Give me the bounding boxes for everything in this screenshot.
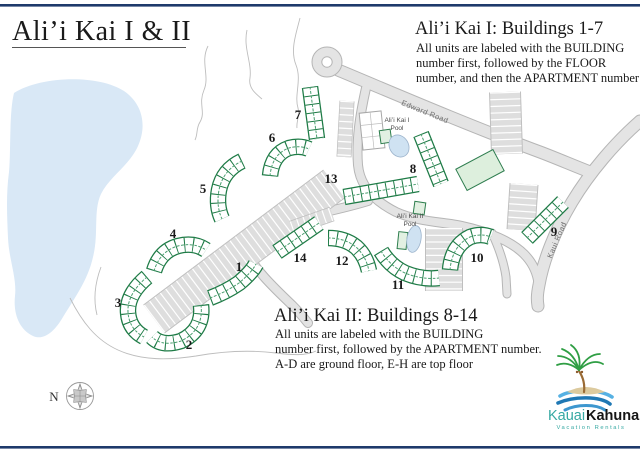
pool-house-2b [397,232,408,250]
building-label-13: 13 [325,171,339,186]
building-label-7: 7 [295,107,302,122]
kai2-line2: number first, followed by the APARTMENT … [275,342,542,356]
building-label-10: 10 [471,250,484,265]
building-6 [270,147,309,176]
pool2-label-line2: Pool [403,221,417,228]
kai2-line3: A-D are ground floor, E-H are top floor [275,357,474,371]
parking-tennis1 [344,101,347,157]
pool1-label-line2: Pool [390,125,404,132]
logo-tagline: Vacation Rentals [557,425,626,431]
compass-rose: N [49,383,93,410]
info-block-kai1: Ali’i Kai I: Buildings 1-7 All units are… [415,19,640,85]
pool-2 [405,224,423,253]
building-12 [328,238,369,271]
tennis-court-2 [456,150,504,191]
parking-building9 [521,184,524,230]
pool2-label-line1: Ali’i Kai II [397,213,424,220]
page-title: Ali’i Kai I & II [12,16,191,47]
building-label-3: 3 [115,295,122,310]
building-label-14: 14 [294,250,308,265]
building-label-4: 4 [170,226,177,241]
kai2-heading: Ali’i Kai II: Buildings 8-14 [274,306,477,326]
building-7 [310,87,317,139]
kai1-line2: number first, followed by the FLOOR [416,56,607,70]
kai1-line3: number, and then the APARTMENT number [416,71,640,85]
top-rule [0,4,640,7]
logo-brand-first: Kauai [548,408,585,424]
building-label-6: 6 [269,130,276,145]
kai2-line1: All units are labeled with the BUILDING [275,327,483,341]
palm-island-icon [557,345,612,410]
building-label-12: 12 [336,253,349,268]
building-label-11: 11 [392,277,404,292]
kai1-heading: Ali’i Kai I: Buildings 1-7 [415,19,603,39]
logo-brand-second: Kahuna [586,408,640,424]
pool1-label-line1: Ali’i Kai I [385,117,410,124]
info-block-kai2: Ali’i Kai II: Buildings 8-14 All units a… [274,306,542,371]
compass-label: N [49,389,59,404]
building-label-1: 1 [236,259,243,274]
building-label-2: 2 [186,337,193,352]
building-5 [218,161,242,219]
parking-northeast [505,92,507,154]
building-3 [128,277,147,337]
building-label-5: 5 [200,181,207,196]
bottom-rule [0,446,640,449]
map-page: 1 2 3 4 5 6 7 8 9 10 11 12 13 14 Edward … [0,0,640,457]
building-label-8: 8 [410,161,417,176]
kauai-kahuna-logo: Kauai Kahuna Vacation Rentals [548,345,640,431]
building-13 [344,184,418,197]
site-map: 1 2 3 4 5 6 7 8 9 10 11 12 13 14 Edward … [0,0,640,457]
building-8 [421,134,441,184]
kai1-line1: All units are labeled with the BUILDING [416,41,624,55]
